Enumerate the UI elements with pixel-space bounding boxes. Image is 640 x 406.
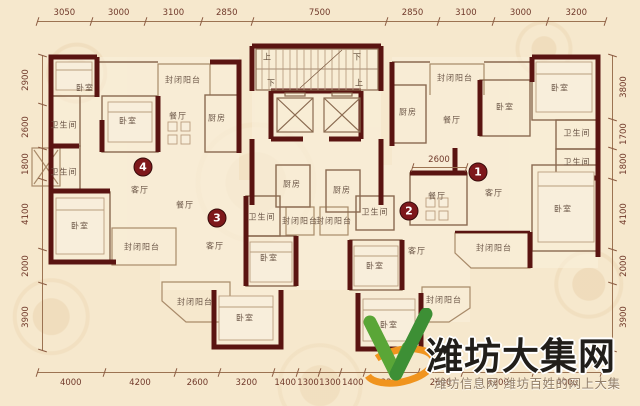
dimension-line bbox=[37, 21, 605, 22]
room-label: 卧室 bbox=[76, 83, 94, 94]
room-label: 餐厅 bbox=[176, 200, 194, 211]
stair-direction-label: 上 bbox=[263, 52, 271, 63]
stair-direction-label: 下 bbox=[267, 78, 275, 89]
room-label: 餐厅 bbox=[169, 111, 187, 122]
dimension-label: 3800 bbox=[619, 77, 629, 99]
dimension-label: 1400 bbox=[342, 378, 364, 388]
dimension-label: 2900 bbox=[21, 69, 31, 91]
room-label: 卫生间 bbox=[51, 167, 78, 178]
dimension-label: 1400 bbox=[274, 378, 296, 388]
dimension-label: 3000 bbox=[510, 8, 532, 18]
dimension-label: 2600 bbox=[21, 116, 31, 138]
room-label: 卫生间 bbox=[564, 157, 591, 168]
room-label: 卧室 bbox=[260, 253, 278, 264]
dimension-label: 3200 bbox=[565, 8, 587, 18]
dimension-label: 3200 bbox=[381, 378, 403, 388]
floor-plan-drawing bbox=[0, 0, 640, 406]
dimension-label: 4200 bbox=[129, 378, 151, 388]
room-label: 卧室 bbox=[71, 221, 89, 232]
room-label: 卧室 bbox=[554, 204, 572, 215]
room-label: 卧室 bbox=[236, 313, 254, 324]
stair-direction-label: 上 bbox=[355, 78, 363, 89]
dimension-label: 3100 bbox=[163, 8, 185, 18]
room-label: 卫生间 bbox=[51, 120, 78, 131]
room-label: 卧室 bbox=[380, 320, 398, 331]
floor-plan-canvas: 卧室卫生间卫生间卧室封闭阳台餐厅厨房客厅卧室封闭阳台餐厅客厅卫生间卧室封闭阳台卧… bbox=[0, 0, 640, 406]
dimension-label: 3200 bbox=[236, 378, 258, 388]
dimension-label: 2600 bbox=[428, 155, 450, 165]
dimension-label: 4100 bbox=[619, 204, 629, 226]
room-label: 封闭阳台 bbox=[426, 295, 462, 306]
unit-badge: 3 bbox=[208, 209, 227, 228]
room-label: 卧室 bbox=[366, 261, 384, 272]
room-label: 封闭阳台 bbox=[124, 242, 160, 253]
dimension-label: 2600 bbox=[430, 378, 452, 388]
dimension-label: 3900 bbox=[619, 306, 629, 328]
dimension-label: 4100 bbox=[21, 204, 31, 226]
room-label: 客厅 bbox=[131, 185, 149, 196]
room-label: 卧室 bbox=[551, 83, 569, 94]
unit-badge: 4 bbox=[134, 158, 153, 177]
room-label: 封闭阳台 bbox=[316, 216, 352, 227]
dimension-label: 2600 bbox=[187, 378, 209, 388]
dimension-label: 1700 bbox=[619, 123, 629, 145]
dimension-label: 3050 bbox=[54, 8, 76, 18]
room-label: 客厅 bbox=[206, 241, 224, 252]
dimension-label: 2850 bbox=[402, 8, 424, 18]
room-label: 封闭阳台 bbox=[437, 73, 473, 84]
unit-badge: 1 bbox=[469, 163, 488, 182]
dimension-line bbox=[412, 167, 466, 168]
dimension-label: 2000 bbox=[619, 256, 629, 278]
room-label: 卧室 bbox=[496, 102, 514, 113]
dimension-label: 4000 bbox=[556, 378, 578, 388]
room-label: 卫生间 bbox=[362, 207, 389, 218]
room-label: 卫生间 bbox=[564, 128, 591, 139]
room-label: 封闭阳台 bbox=[476, 243, 512, 254]
dimension-label: 3000 bbox=[108, 8, 130, 18]
room-label: 卧室 bbox=[119, 116, 137, 127]
dimension-label: 7500 bbox=[309, 8, 331, 18]
dimension-label: 1800 bbox=[21, 153, 31, 175]
room-label: 客厅 bbox=[408, 246, 426, 257]
dimension-label: 2000 bbox=[21, 256, 31, 278]
room-label: 餐厅 bbox=[443, 115, 461, 126]
dimension-line bbox=[612, 55, 613, 350]
dimension-label: 1300 bbox=[319, 378, 341, 388]
dimension-label: 4200 bbox=[487, 378, 509, 388]
room-label: 封闭阳台 bbox=[165, 75, 201, 86]
stair-direction-label: 下 bbox=[353, 52, 361, 63]
room-label: 厨房 bbox=[208, 113, 226, 124]
room-label: 餐厅 bbox=[428, 191, 446, 202]
room-label: 封闭阳台 bbox=[177, 297, 213, 308]
room-label: 封闭阳台 bbox=[282, 216, 318, 227]
dimension-label: 3900 bbox=[21, 306, 31, 328]
room-label: 客厅 bbox=[485, 188, 503, 199]
unit-badge: 2 bbox=[400, 202, 419, 221]
dimension-line bbox=[42, 55, 43, 350]
dimension-label: 2850 bbox=[216, 8, 238, 18]
room-label: 厨房 bbox=[333, 185, 351, 196]
room-label: 厨房 bbox=[399, 107, 417, 118]
room-label: 厨房 bbox=[283, 179, 301, 190]
room-label: 卫生间 bbox=[249, 212, 276, 223]
dimension-label: 4000 bbox=[60, 378, 82, 388]
dimension-label: 1300 bbox=[297, 378, 319, 388]
dimension-label: 1800 bbox=[619, 153, 629, 175]
dimension-label: 3100 bbox=[455, 8, 477, 18]
